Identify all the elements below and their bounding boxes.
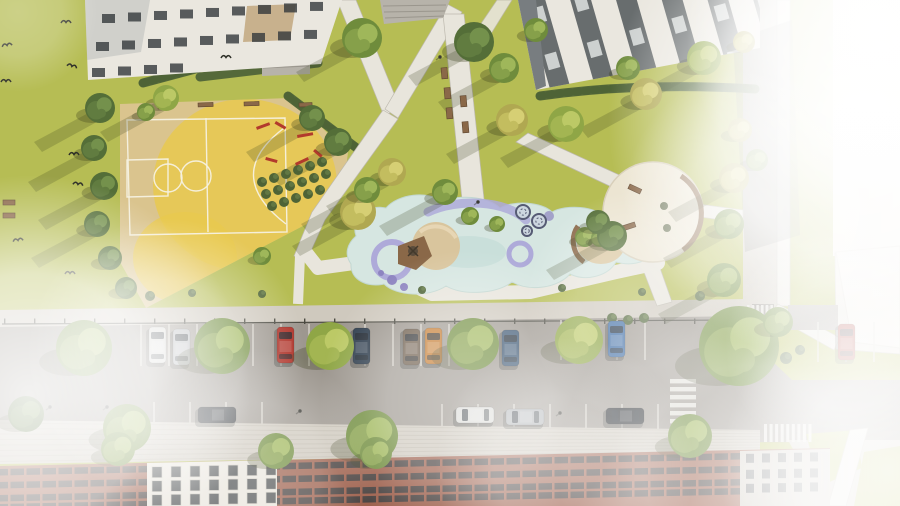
window xyxy=(206,8,219,17)
tree-canopy xyxy=(389,173,397,181)
bush-highlight xyxy=(301,178,306,183)
window xyxy=(252,33,265,42)
bush xyxy=(261,189,271,199)
tree-canopy xyxy=(442,193,450,201)
lamp-post xyxy=(438,55,441,58)
tree-canopy xyxy=(562,125,573,136)
fence-post xyxy=(304,319,305,325)
bush xyxy=(321,169,331,179)
tree-canopy xyxy=(163,99,171,107)
bush xyxy=(257,177,267,187)
bench xyxy=(244,101,259,106)
bush-highlight xyxy=(283,198,288,203)
bench xyxy=(446,107,453,118)
window xyxy=(170,63,183,72)
bush-highlight xyxy=(307,190,312,195)
window xyxy=(96,42,109,51)
bush xyxy=(293,165,303,175)
bush xyxy=(279,197,289,207)
window xyxy=(128,12,141,21)
tree-canopy xyxy=(534,31,541,38)
window xyxy=(118,66,131,75)
window xyxy=(200,36,213,45)
bush-highlight xyxy=(295,194,300,199)
tree-canopy xyxy=(335,143,343,151)
tree-canopy xyxy=(358,39,370,51)
spinner-toy xyxy=(532,214,546,228)
bush-highlight xyxy=(321,158,326,163)
window xyxy=(304,30,317,39)
bush xyxy=(285,181,295,191)
bush-highlight xyxy=(325,170,330,175)
scene-svg xyxy=(0,0,900,506)
window xyxy=(310,2,323,11)
window xyxy=(148,39,161,48)
tree-canopy xyxy=(144,112,149,117)
bush-highlight xyxy=(297,166,302,171)
lamp-post xyxy=(476,200,479,203)
bench xyxy=(462,121,469,132)
bush-highlight xyxy=(289,182,294,187)
bush xyxy=(309,173,319,183)
bench xyxy=(198,102,213,107)
window xyxy=(232,6,245,15)
window xyxy=(92,68,105,77)
spinner-ring xyxy=(516,205,530,219)
bush-highlight xyxy=(265,190,270,195)
bush xyxy=(267,201,277,211)
walk-to-sidewalk xyxy=(298,256,300,304)
tree-canopy xyxy=(364,191,372,199)
bush xyxy=(297,177,307,187)
bench xyxy=(444,87,451,98)
bush-highlight xyxy=(285,170,290,175)
bush xyxy=(317,157,327,167)
bush xyxy=(303,189,313,199)
tree-canopy xyxy=(509,121,519,131)
window xyxy=(174,37,187,46)
spinner-ring xyxy=(532,214,546,228)
window xyxy=(102,14,115,23)
window xyxy=(278,31,291,40)
tree-canopy xyxy=(495,224,500,229)
tree-canopy xyxy=(470,43,482,55)
bench xyxy=(441,67,448,78)
tree-canopy xyxy=(97,109,106,118)
bush-highlight xyxy=(319,186,324,191)
bush-highlight xyxy=(277,186,282,191)
spinner-toy xyxy=(522,226,532,236)
tree-canopy xyxy=(354,213,365,224)
bush xyxy=(291,193,301,203)
bush xyxy=(269,173,279,183)
spinner-toy xyxy=(516,205,530,219)
bush-highlight xyxy=(273,174,278,179)
tree-canopy xyxy=(91,149,99,157)
bush-highlight xyxy=(309,162,314,167)
window xyxy=(154,11,167,20)
spinner-ring xyxy=(522,226,532,236)
window xyxy=(144,65,157,74)
bush xyxy=(281,169,291,179)
bush-highlight xyxy=(271,202,276,207)
bench xyxy=(460,95,467,106)
tree-canopy xyxy=(468,216,473,221)
bush-highlight xyxy=(313,174,318,179)
purple-dot xyxy=(378,270,384,276)
tree-canopy xyxy=(501,69,510,78)
tree-canopy xyxy=(309,119,317,127)
bush xyxy=(273,185,283,195)
window xyxy=(284,3,297,12)
bush xyxy=(315,185,325,195)
window xyxy=(180,9,193,18)
window xyxy=(226,34,239,43)
window xyxy=(122,40,135,49)
window xyxy=(258,5,271,14)
aerial-courtyard-rendering xyxy=(0,0,900,506)
bush xyxy=(305,161,315,171)
bush-highlight xyxy=(261,178,266,183)
